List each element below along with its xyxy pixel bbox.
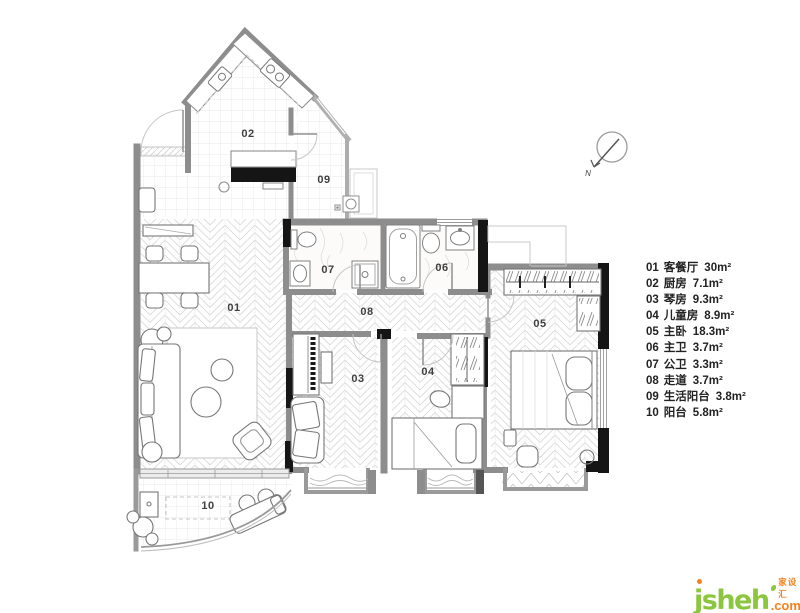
bay-curtains (310, 475, 473, 486)
site-watermark: jsheh 家设汇 .com (694, 576, 800, 613)
legend-row: 03琴房9.3m² (646, 292, 746, 308)
legend-row: 02厨房7.1m² (646, 276, 746, 292)
room-label-03: 03 (351, 373, 364, 385)
room-label-05: 05 (533, 318, 546, 330)
leaf-icon (771, 585, 777, 591)
legend-row: 10阳台5.8m² (646, 405, 746, 421)
legend-row: 01客餐厅30m² (646, 260, 746, 276)
room-legend: 01客餐厅30m² 02厨房7.1m² 03琴房9.3m² 04儿童房8.9m²… (646, 260, 746, 421)
legend-row: 06主卫3.7m² (646, 340, 746, 356)
legend-row: 09生活阳台3.8m² (646, 389, 746, 405)
compass-north-label: N (585, 169, 591, 178)
legend-row: 07公卫3.3m² (646, 357, 746, 373)
watermark-tld-text: .com (771, 598, 800, 613)
room-label-10: 10 (201, 500, 214, 512)
watermark-cjk-text: 家设汇 (778, 576, 800, 600)
room-label-01: 01 (227, 302, 240, 314)
legend-row: 04儿童房8.9m² (646, 308, 746, 324)
legend-row: 05主卧18.3m² (646, 324, 746, 340)
compass: N (585, 132, 627, 178)
room-label-04: 04 (421, 366, 435, 378)
room-label-08: 08 (360, 306, 373, 318)
floorplan-page: 01 02 03 04 05 06 07 08 09 10 N 01客餐厅30m… (0, 0, 800, 613)
room-label-02: 02 (241, 128, 254, 140)
legend-row: 08走道3.7m² (646, 373, 746, 389)
room-label-07: 07 (321, 264, 334, 276)
watermark-brand-text: jsheh (694, 588, 769, 613)
room-label-06: 06 (435, 262, 448, 274)
watermark-j-dot (697, 579, 702, 584)
room-label-09: 09 (317, 174, 330, 186)
